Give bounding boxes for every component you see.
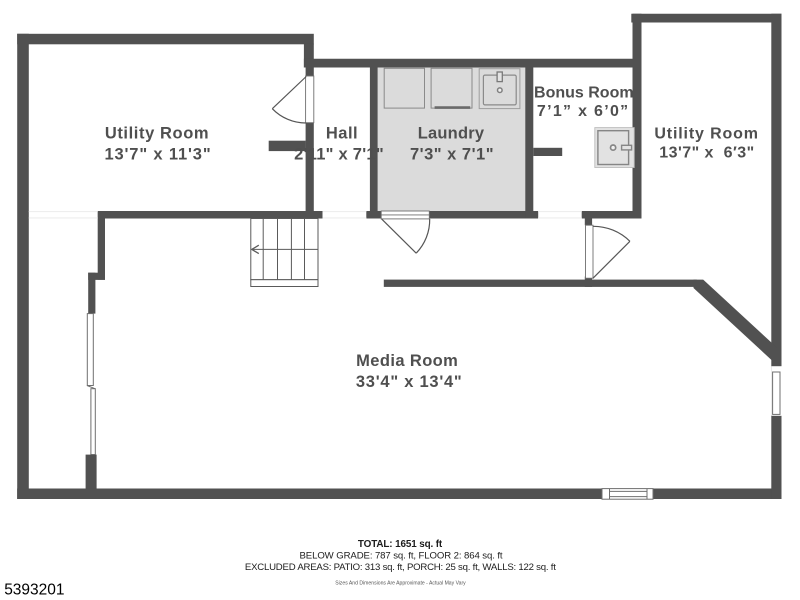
svg-text:Utility Room: Utility Room [105,124,209,142]
svg-text:Sizes And Dimensions Are Appro: Sizes And Dimensions Are Approximate - A… [335,580,466,586]
svg-text:EXCLUDED AREAS: PATIO: 313 sq.: EXCLUDED AREAS: PATIO: 313 sq. ft, PORCH… [245,562,556,573]
svg-text:2'11" x 7'1": 2'11" x 7'1" [294,146,384,164]
svg-text:7'3" x 7'1": 7'3" x 7'1" [410,146,494,164]
svg-text:13'7" x 6′3": 13'7" x 6′3" [659,145,754,162]
svg-text:7’1” x 6’0”: 7’1” x 6’0” [537,103,630,120]
svg-text:Laundry: Laundry [418,124,485,142]
svg-text:Bonus Room: Bonus Room [534,84,634,101]
svg-text:33'4" x 13'4": 33'4" x 13'4" [356,373,463,391]
svg-text:Media Room: Media Room [356,352,458,370]
svg-text:5393201: 5393201 [4,581,64,598]
svg-text:TOTAL: 1651 sq. ft: TOTAL: 1651 sq. ft [358,539,443,550]
svg-text:Hall: Hall [326,124,358,142]
svg-text:BELOW GRADE: 787 sq. ft, FLOOR: BELOW GRADE: 787 sq. ft, FLOOR 2: 864 sq… [299,551,502,562]
svg-text:13'7" x 11'3": 13'7" x 11'3" [104,146,211,164]
svg-text:Utility Room: Utility Room [654,126,758,143]
